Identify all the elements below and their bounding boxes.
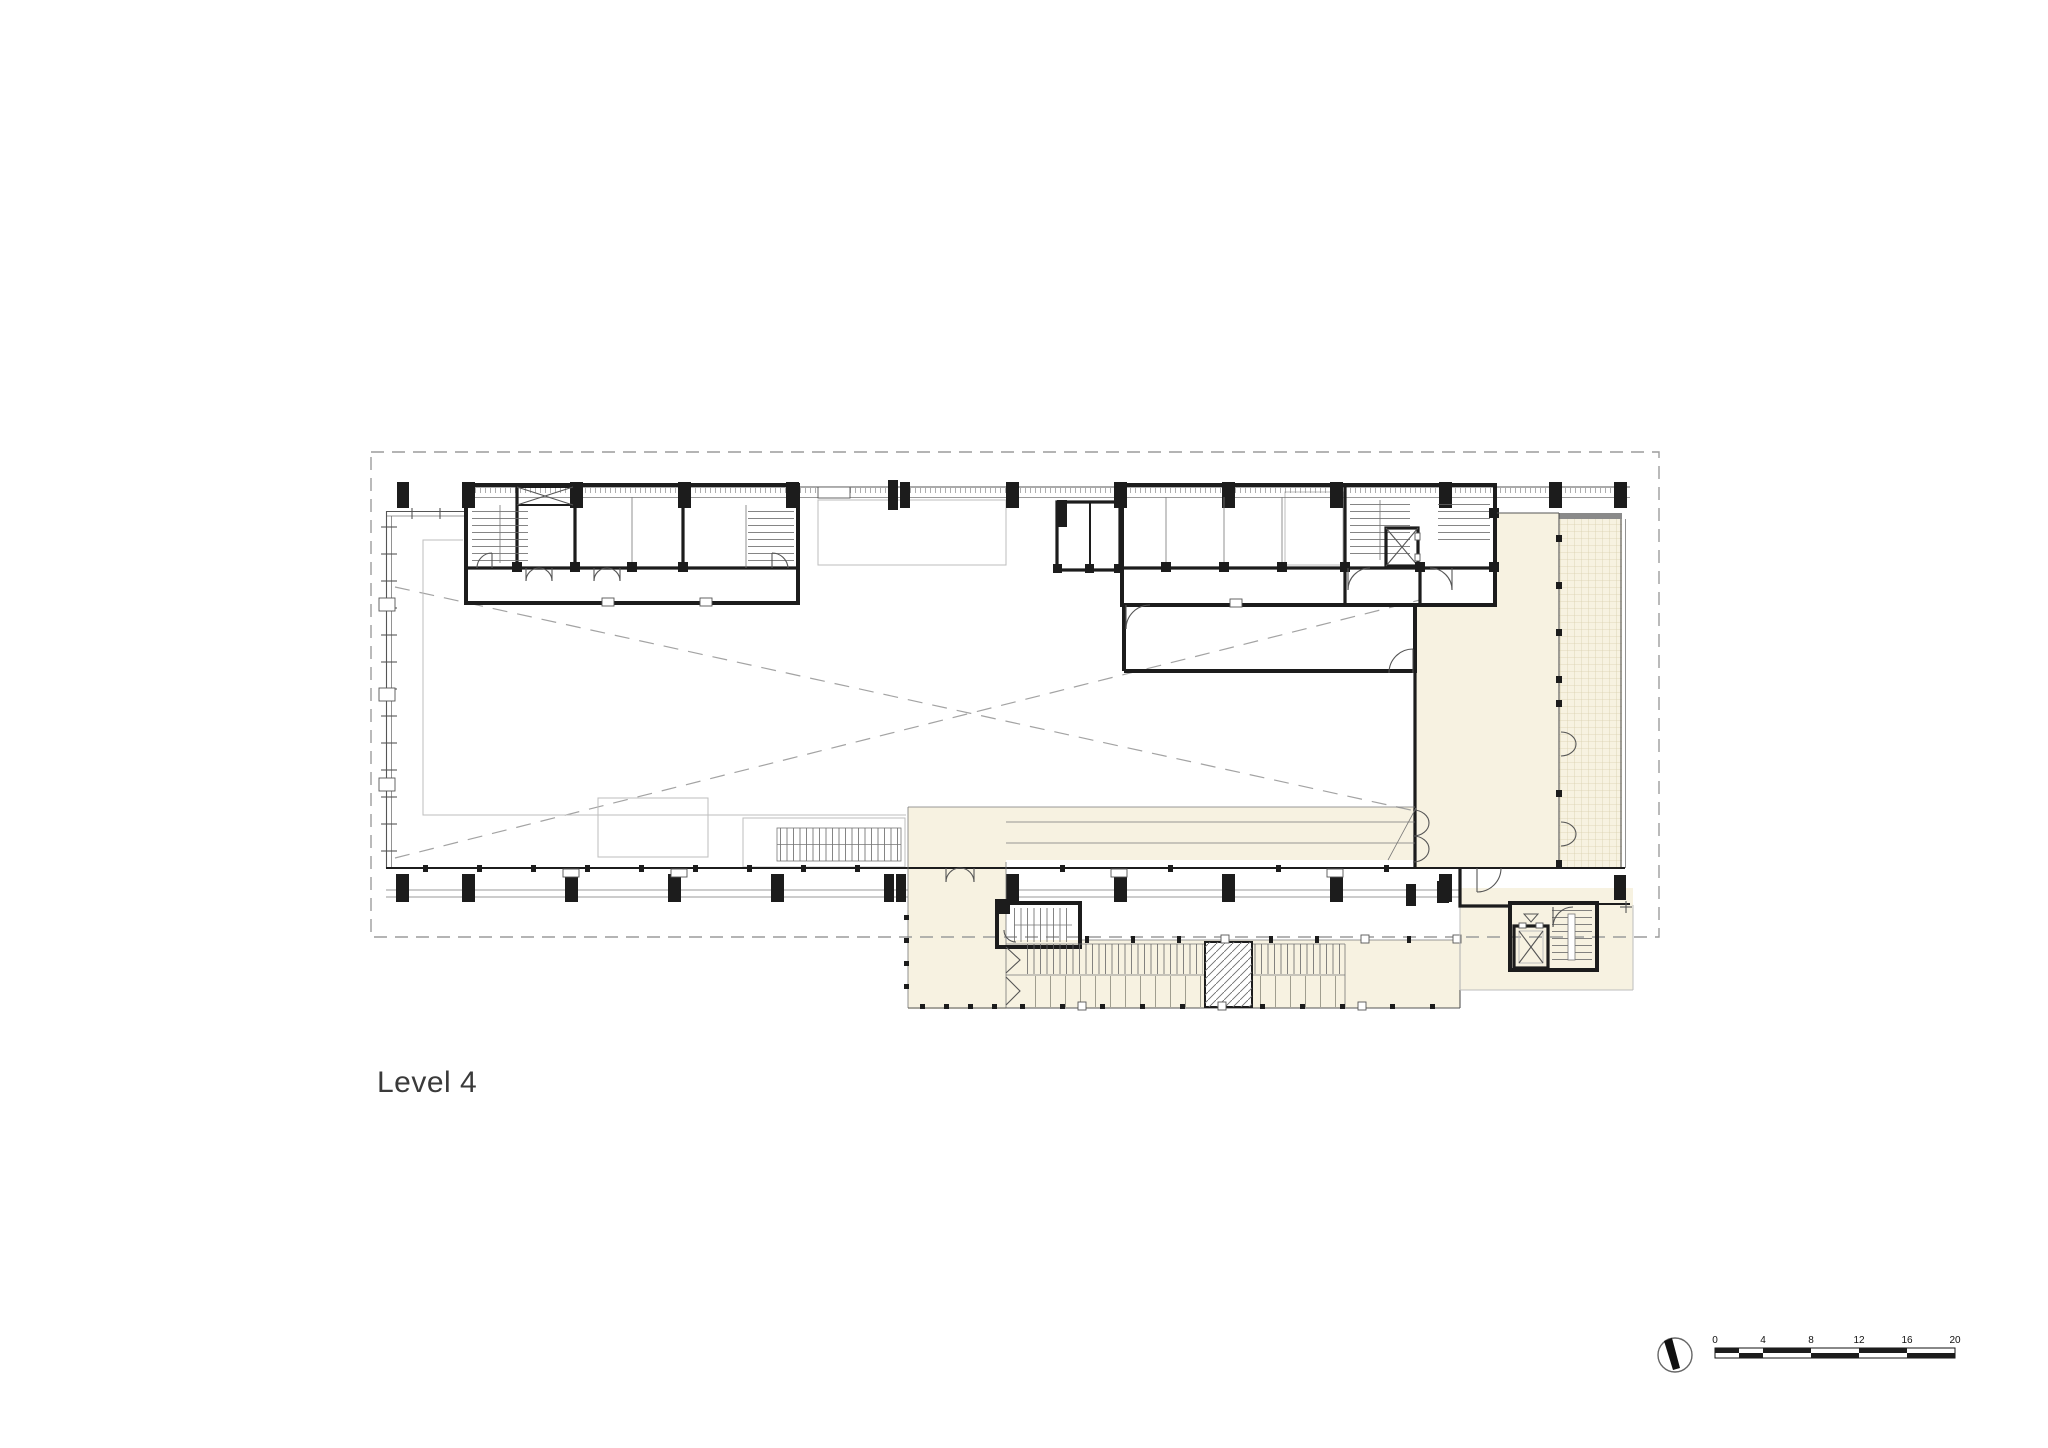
- scale-tick-16: 16: [1901, 1335, 1913, 1346]
- floor-plan-page: Level 4 0 4 8 12 16 20: [0, 0, 2048, 1448]
- core-room-middle: [1053, 500, 1123, 573]
- door-double-west-2: [594, 568, 620, 581]
- scale-tick-4: 4: [1760, 1335, 1766, 1346]
- stair-east-1: [1350, 500, 1410, 560]
- scale-tick-20: 20: [1949, 1335, 1961, 1346]
- door-corridor-left: [1126, 605, 1150, 629]
- scale-bar: 0 4 8 12 16 20: [1712, 1335, 1961, 1358]
- annex-hatched-block: [1205, 942, 1252, 1007]
- facade-sill: [818, 487, 850, 498]
- scale-tick-0: 0: [1712, 1335, 1718, 1346]
- north-arrow-icon: [1658, 1338, 1692, 1372]
- link-strip-zone: [908, 807, 1006, 1009]
- east-gallery-zone: [1415, 513, 1559, 868]
- door-east-band1-left: [1348, 568, 1370, 590]
- floor-plan-drawing: Level 4 0 4 8 12 16 20: [0, 0, 2048, 1448]
- room-block-west: [466, 485, 798, 606]
- hall-stair: [777, 828, 901, 861]
- door-double-west-1: [526, 568, 552, 581]
- stair-west-2: [748, 505, 794, 561]
- stair-southeast: [1552, 907, 1592, 966]
- stair-west-1: [472, 505, 528, 563]
- east-lower-corridor: [1124, 599, 1415, 673]
- ramp-band-zone: [1006, 807, 1415, 860]
- scale-tick-12: 12: [1853, 1335, 1865, 1346]
- scale-tick-8: 8: [1808, 1335, 1814, 1346]
- annex-stair-enclosure: [995, 899, 1080, 947]
- stair-east-2: [1438, 502, 1490, 546]
- terrace-grid: [1559, 518, 1622, 868]
- west-wall: [379, 511, 397, 868]
- door-east-band1-right: [1430, 568, 1452, 590]
- level-label: Level 4: [377, 1066, 477, 1099]
